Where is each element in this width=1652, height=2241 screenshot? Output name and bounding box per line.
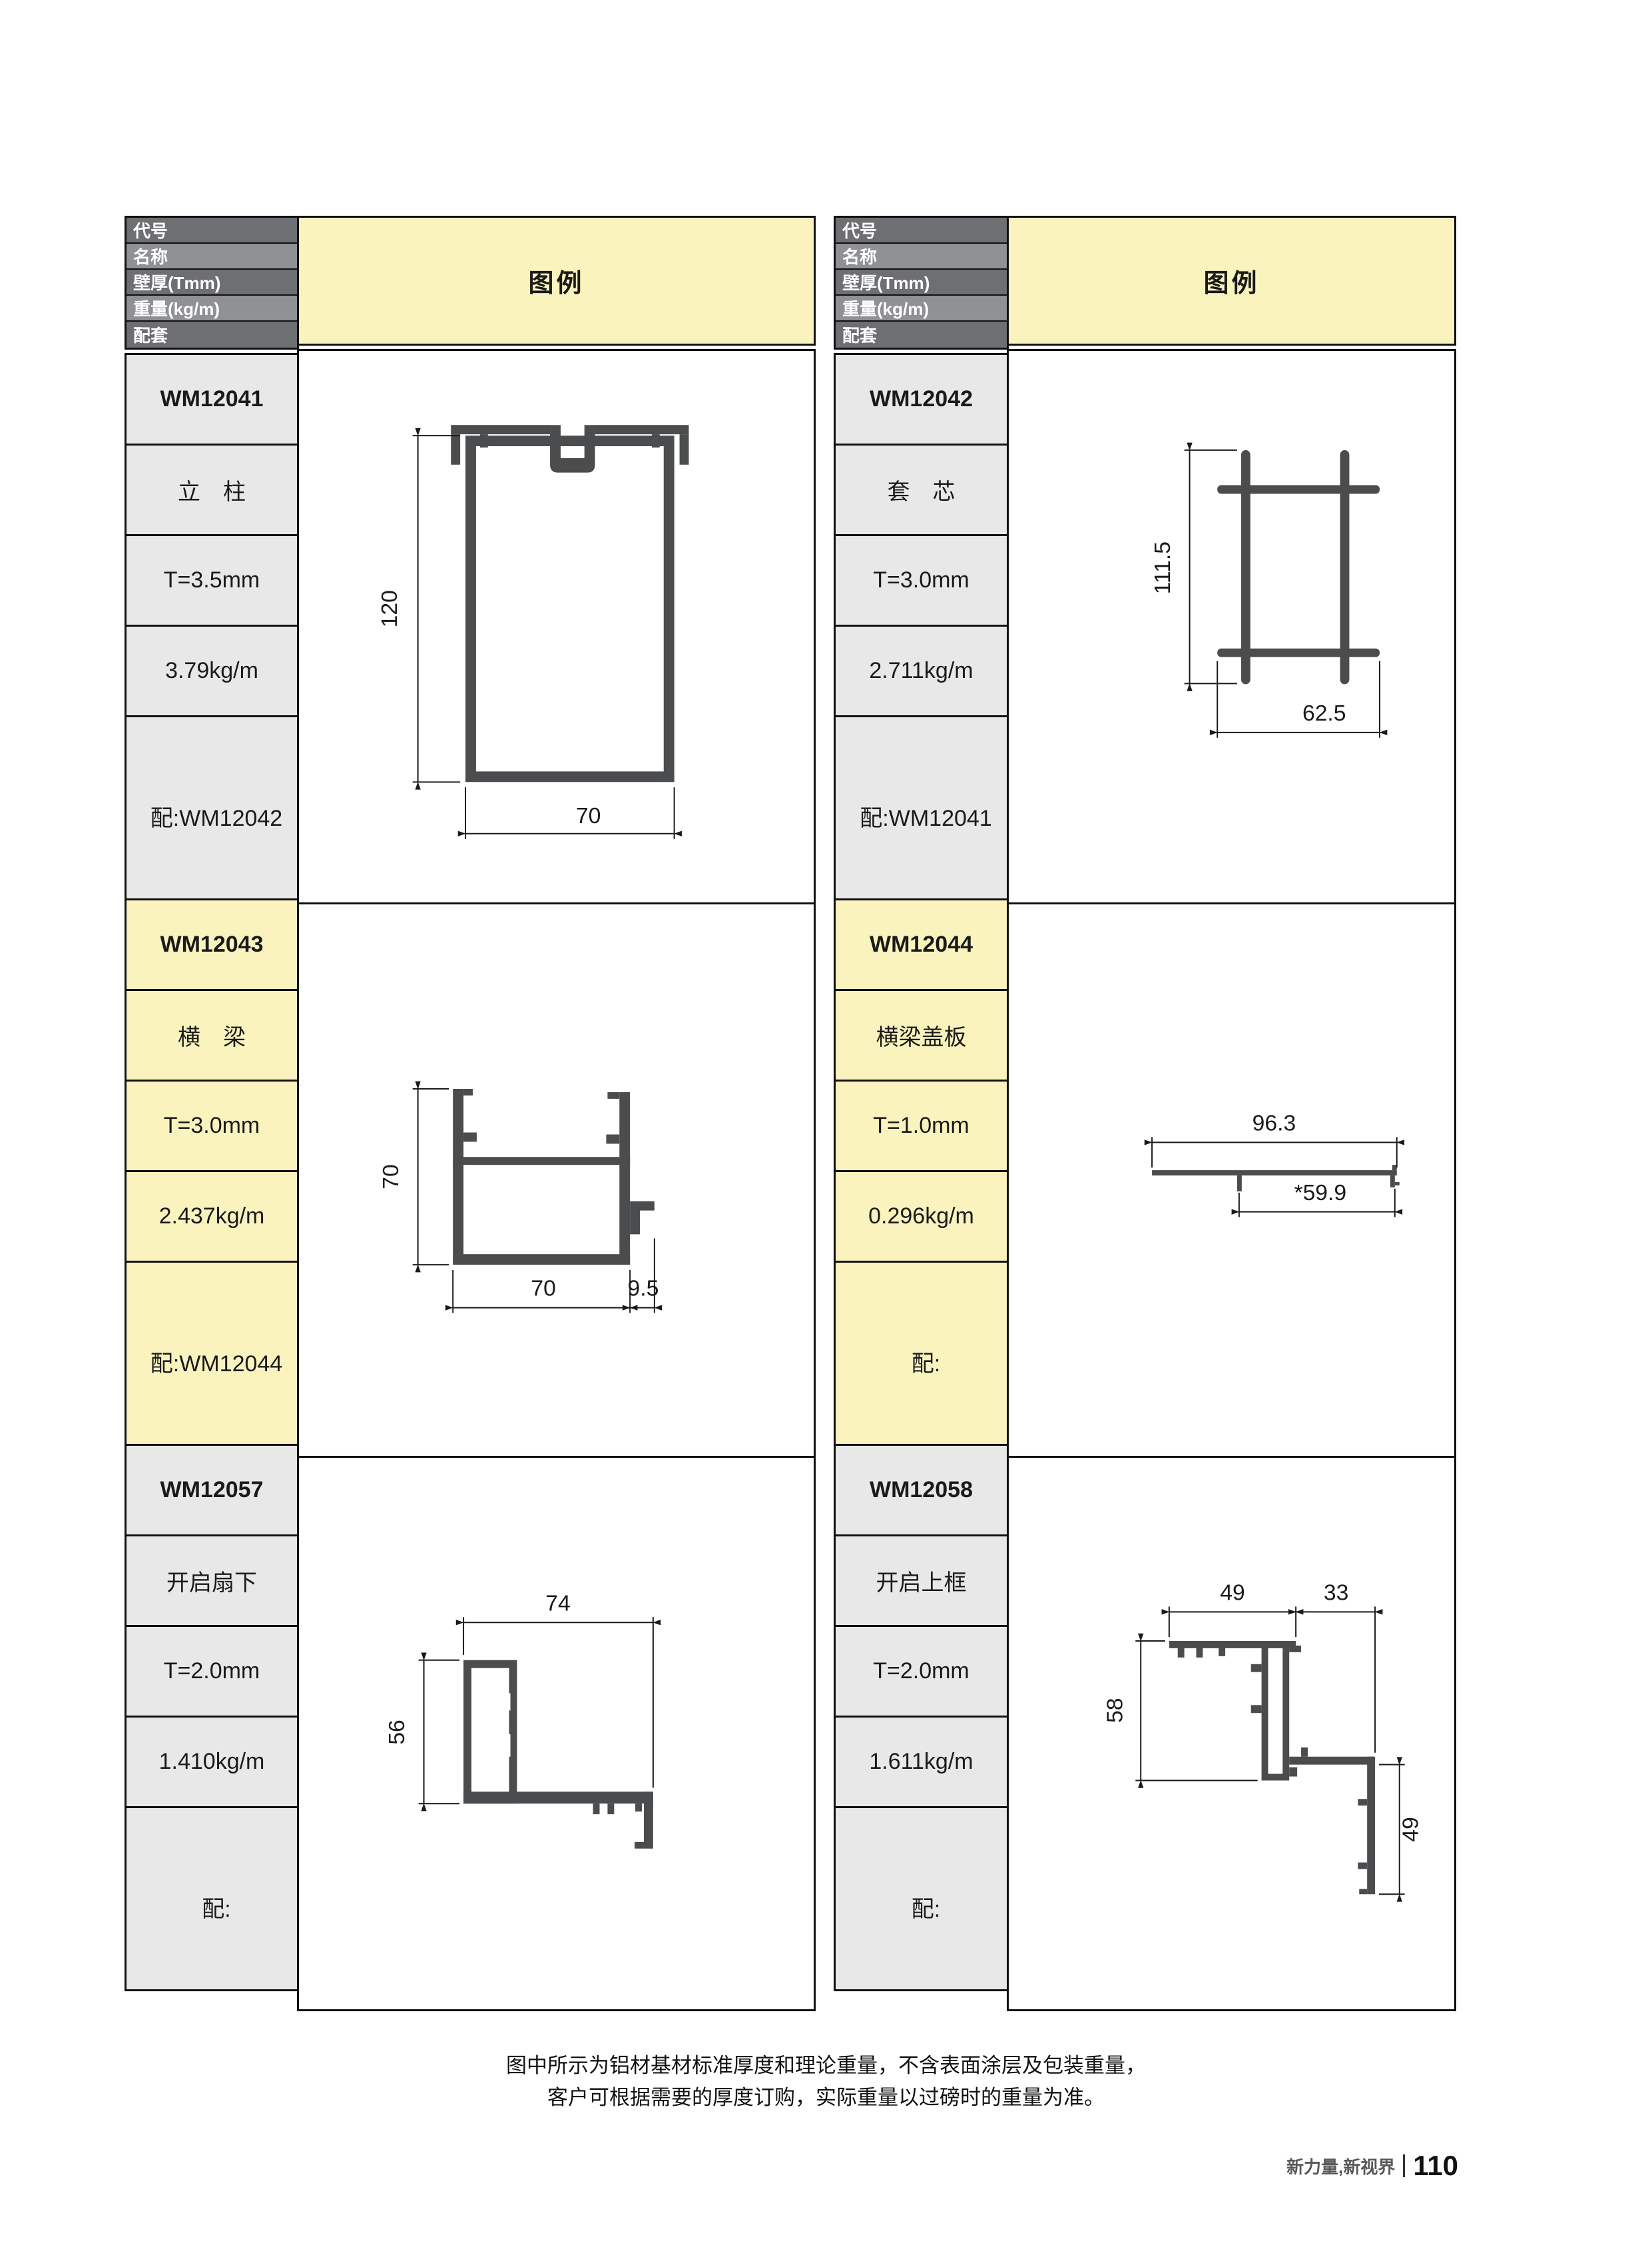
profile-thickness: T=2.0mm <box>834 1625 1009 1718</box>
profile-mate: 配: <box>834 1806 1009 1991</box>
profile-weight: 1.611kg/m <box>834 1716 1009 1808</box>
footnote-line1: 图中所示为铝材基材标准厚度和理论重量，不含表面涂层及包装重量， <box>0 2050 1652 2082</box>
dim-label-width: 70 <box>531 1276 556 1301</box>
profile-drawing-wm12042: 111.5 62.5 <box>1009 351 1454 902</box>
profile-weight: 2.437kg/m <box>125 1170 299 1263</box>
profile-name: 横 梁 <box>125 989 299 1082</box>
profile-block-wm12057: WM12057 开启扇下 T=2.0mm 1.410kg/m 配: <box>125 1444 299 1991</box>
profile-drawing-wm12043: 70 70 9.5 <box>299 904 814 1456</box>
profile-weight: 2.711kg/m <box>834 625 1009 717</box>
profile-mate: 配: <box>125 1806 299 1991</box>
profile-name: 立 柱 <box>125 444 299 536</box>
page-footer: 新力量,新视界 110 <box>1286 2150 1458 2182</box>
dim-label-width: 70 <box>576 803 601 828</box>
header-row-thickness: 壁厚(Tmm) <box>127 270 297 296</box>
legend-column-right: 图例 111.5 62.5 <box>1007 216 1456 2011</box>
catalog-page: 代号 名称 壁厚(Tmm) 重量(kg/m) 配套 WM12041 立 柱 T=… <box>0 0 1652 2241</box>
dim-label-left: 58 <box>1102 1698 1127 1723</box>
dim-label-width: 74 <box>545 1590 571 1616</box>
profile-code: WM12057 <box>125 1444 299 1536</box>
dim-label-height: 70 <box>378 1164 404 1189</box>
profile-drawing-wm12041: 120 70 <box>299 351 814 902</box>
profile-weight: 3.79kg/m <box>125 625 299 717</box>
drawing-wm12043: 70 70 9.5 <box>297 902 816 1458</box>
profile-block-wm12058: WM12058 开启上框 T=2.0mm 1.611kg/m 配: <box>834 1444 1009 1991</box>
profile-thickness: T=1.0mm <box>834 1080 1009 1172</box>
footnote-line2: 客户可根据需要的厚度订购，实际重量以过磅时的重量为准。 <box>0 2082 1652 2114</box>
profile-block-wm12044: WM12044 横梁盖板 T=1.0mm 0.296kg/m 配: <box>834 898 1009 1446</box>
profile-mate: 配:WM12041 <box>834 715 1009 900</box>
profile-code: WM12058 <box>834 1444 1009 1536</box>
profile-code: WM12041 <box>125 353 299 446</box>
dim-label-width: 62.5 <box>1302 701 1346 726</box>
profile-block-wm12041: WM12041 立 柱 T=3.5mm 3.79kg/m 配:WM12042 <box>125 353 299 900</box>
dim-label-top-left: 49 <box>1220 1580 1244 1605</box>
profile-drawing-wm12044: 96.3 *59.9 <box>1009 904 1454 1456</box>
legend-column-left: 图例 120 <box>297 216 816 2011</box>
page-number: 110 <box>1413 2150 1458 2182</box>
profile-code: WM12042 <box>834 353 1009 446</box>
dim-label-bottom: *59.9 <box>1294 1180 1346 1205</box>
dim-label-height: 120 <box>377 590 402 627</box>
profile-name: 横梁盖板 <box>834 989 1009 1082</box>
footnote: 图中所示为铝材基材标准厚度和理论重量，不含表面涂层及包装重量， 客户可根据需要的… <box>0 2050 1652 2114</box>
spec-header-left: 代号 名称 壁厚(Tmm) 重量(kg/m) 配套 <box>125 216 299 350</box>
footer-divider <box>1403 2154 1405 2177</box>
header-row-weight: 重量(kg/m) <box>127 296 297 322</box>
profile-drawing-wm12057: 74 56 <box>299 1458 814 2009</box>
drawing-wm12057: 74 56 <box>297 1456 816 2011</box>
drawing-wm12058: 49 33 58 49 <box>1007 1456 1456 2011</box>
dim-label-height: 111.5 <box>1150 541 1175 594</box>
dim-label-top: 96.3 <box>1252 1111 1296 1136</box>
profile-thickness: T=2.0mm <box>125 1625 299 1718</box>
profile-drawing-wm12058: 49 33 58 49 <box>1009 1458 1454 2009</box>
drawing-wm12042: 111.5 62.5 <box>1007 349 1456 904</box>
profile-weight: 0.296kg/m <box>834 1170 1009 1263</box>
legend-header-left: 图例 <box>297 216 816 346</box>
legend-header-right: 图例 <box>1007 216 1456 346</box>
header-row-code: 代号 <box>127 218 297 244</box>
header-row-mate: 配套 <box>127 322 297 348</box>
profile-thickness: T=3.5mm <box>125 534 299 627</box>
profile-code: WM12043 <box>125 898 299 991</box>
profile-name: 开启扇下 <box>125 1534 299 1627</box>
header-row-code: 代号 <box>836 218 1007 244</box>
header-row-thickness: 壁厚(Tmm) <box>836 270 1007 296</box>
profile-block-wm12043: WM12043 横 梁 T=3.0mm 2.437kg/m 配:WM12044 <box>125 898 299 1446</box>
header-row-mate: 配套 <box>836 322 1007 348</box>
profile-thickness: T=3.0mm <box>125 1080 299 1172</box>
dim-label-right: 49 <box>1398 1817 1424 1842</box>
profile-name: 套 芯 <box>834 444 1009 536</box>
header-row-name: 名称 <box>836 244 1007 270</box>
profile-mate: 配: <box>834 1261 1009 1446</box>
profile-code: WM12044 <box>834 898 1009 991</box>
spec-header-right: 代号 名称 壁厚(Tmm) 重量(kg/m) 配套 <box>834 216 1009 350</box>
header-row-name: 名称 <box>127 244 297 270</box>
profile-mate: 配:WM12044 <box>125 1261 299 1446</box>
catalog-right-half: 代号 名称 壁厚(Tmm) 重量(kg/m) 配套 WM12042 套 芯 T=… <box>834 216 1456 2011</box>
dim-label-foot: 9.5 <box>628 1276 659 1301</box>
spec-column-right: 代号 名称 壁厚(Tmm) 重量(kg/m) 配套 WM12042 套 芯 T=… <box>834 216 1009 1991</box>
dim-label-top-right: 33 <box>1324 1580 1348 1605</box>
catalog-left-half: 代号 名称 壁厚(Tmm) 重量(kg/m) 配套 WM12041 立 柱 T=… <box>125 216 816 2011</box>
header-row-weight: 重量(kg/m) <box>836 296 1007 322</box>
drawing-wm12041: 120 70 <box>297 349 816 904</box>
profile-weight: 1.410kg/m <box>125 1716 299 1808</box>
profile-mate: 配:WM12042 <box>125 715 299 900</box>
dim-label-height: 56 <box>384 1720 410 1745</box>
profile-block-wm12042: WM12042 套 芯 T=3.0mm 2.711kg/m 配:WM12041 <box>834 353 1009 900</box>
drawing-wm12044: 96.3 *59.9 <box>1007 902 1456 1458</box>
profile-thickness: T=3.0mm <box>834 534 1009 627</box>
spec-column-left: 代号 名称 壁厚(Tmm) 重量(kg/m) 配套 WM12041 立 柱 T=… <box>125 216 299 1991</box>
profile-name: 开启上框 <box>834 1534 1009 1627</box>
footer-slogan: 新力量,新视界 <box>1286 2154 1395 2178</box>
